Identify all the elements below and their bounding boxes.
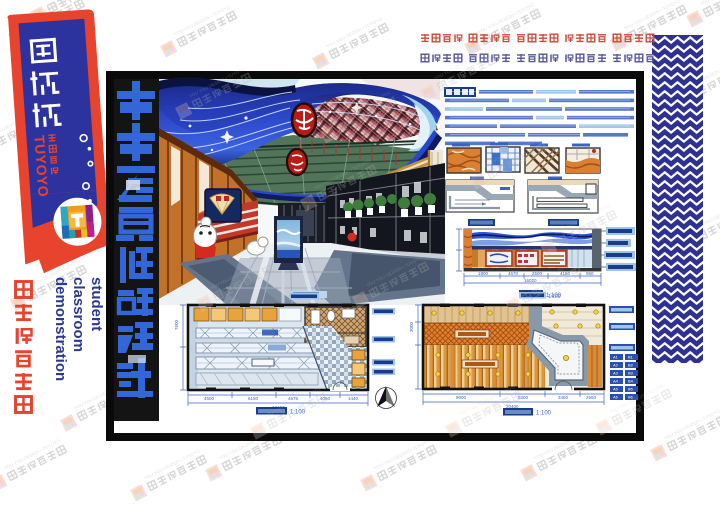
svg-text:A5: A5	[613, 387, 619, 392]
svg-text:B1: B1	[628, 355, 634, 360]
svg-text:2500: 2500	[532, 271, 543, 276]
svg-text:2550: 2550	[586, 395, 597, 400]
svg-text:A2: A2	[613, 363, 619, 368]
svg-text:A3: A3	[613, 371, 619, 376]
svg-text:1:100: 1:100	[548, 294, 561, 300]
svg-text:student: student	[88, 277, 105, 331]
svg-text:1440: 1440	[348, 396, 359, 401]
svg-text:demonstration: demonstration	[52, 277, 69, 381]
svg-text:3000: 3000	[409, 321, 414, 332]
svg-text:4500: 4500	[204, 396, 215, 401]
svg-text:classroom: classroom	[70, 277, 87, 352]
svg-text:B4: B4	[628, 379, 634, 384]
svg-text:4670: 4670	[508, 271, 519, 276]
svg-text:1800: 1800	[478, 271, 489, 276]
svg-text:6150: 6150	[248, 396, 259, 401]
svg-text:7600: 7600	[174, 319, 179, 330]
svg-text:A6: A6	[613, 395, 619, 400]
svg-text:A1: A1	[613, 355, 619, 360]
svg-text:9000: 9000	[456, 395, 467, 400]
svg-text:A4: A4	[613, 379, 619, 384]
svg-text:950: 950	[586, 271, 594, 276]
svg-text:1:100: 1:100	[536, 411, 552, 417]
svg-text:B3: B3	[628, 371, 634, 376]
svg-text:B2: B2	[628, 363, 634, 368]
svg-text:3450: 3450	[558, 395, 569, 400]
svg-text:B5: B5	[628, 387, 634, 392]
